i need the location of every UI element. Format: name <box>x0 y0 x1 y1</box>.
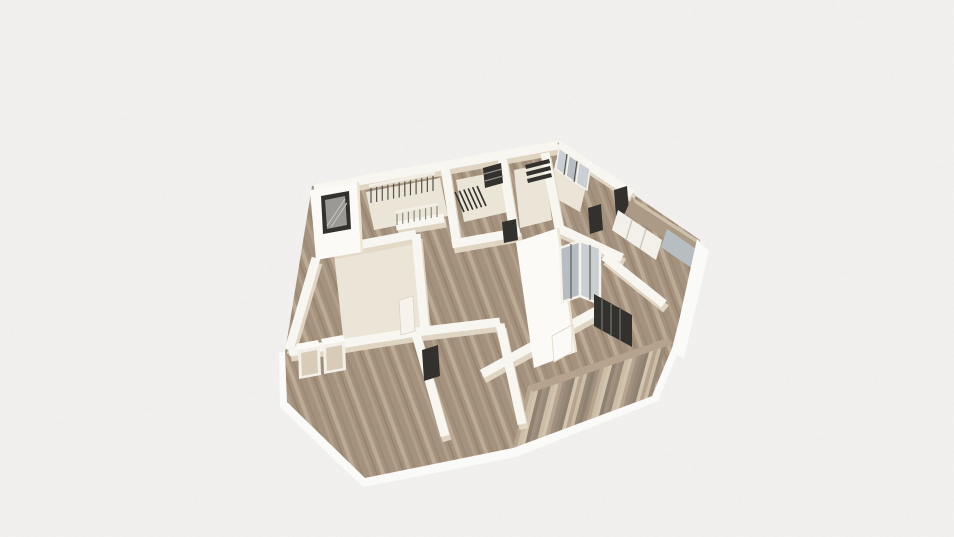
closet-2 <box>321 335 346 374</box>
door-bottom-room <box>422 345 440 381</box>
door-leaf-white <box>399 296 415 335</box>
window-room <box>310 182 362 260</box>
door-top-room-a <box>588 204 603 234</box>
door-stair-block <box>502 219 518 243</box>
floorplan-3d-viewport[interactable] <box>0 0 954 537</box>
closet-1 <box>296 340 321 379</box>
